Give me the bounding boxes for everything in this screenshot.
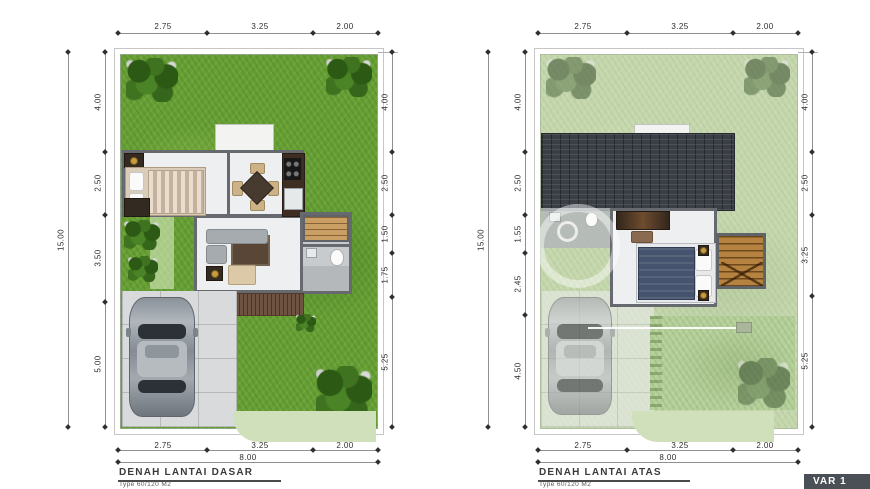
bath-sink [306, 248, 317, 258]
dim-label: 1.75 [381, 266, 390, 283]
dim-label: 3.25 [671, 22, 688, 31]
garden-plants [126, 58, 178, 102]
rear-window [557, 379, 603, 392]
dim-tick [115, 459, 121, 465]
wardrobe [616, 211, 670, 230]
dim-tick [389, 49, 395, 55]
sunroof [564, 345, 596, 358]
lamp [700, 247, 707, 254]
lamp [130, 157, 138, 165]
side-mirror [610, 328, 615, 337]
watermark-ring [536, 204, 620, 288]
dim-tick [115, 447, 121, 453]
dim-label: 1.55 [514, 225, 523, 242]
garden-plants [738, 358, 790, 408]
dim-label: 3.25 [801, 246, 810, 263]
dim-tick [809, 212, 815, 218]
dim-line [525, 52, 526, 427]
dim-label: 3.25 [671, 441, 688, 450]
side-mirror [193, 328, 198, 337]
dim-tick [389, 149, 395, 155]
dim-tick [535, 447, 541, 453]
roof-tiles [541, 133, 735, 211]
dim-label: 2.75 [574, 441, 591, 450]
dim-label: 4.00 [381, 93, 390, 110]
garden-plants [546, 57, 596, 99]
garden-plants [744, 57, 790, 97]
sidewalk-apron [632, 411, 774, 442]
kitchen-sink [284, 188, 303, 210]
dim-tick [389, 424, 395, 430]
dim-label: 5.00 [94, 355, 103, 372]
dim-line [392, 52, 393, 427]
dim-label: 4.50 [514, 362, 523, 379]
dim-line [105, 52, 106, 427]
plan-subtitle: Type 60/120 M2 [539, 481, 591, 488]
floorplan-sheet: 2.75 3.25 2.00 15.00 4.00 2.50 3.50 5.00… [0, 0, 870, 489]
bedroom-wall [227, 150, 230, 217]
dim-label: 2.50 [514, 174, 523, 191]
dim-label: 1.50 [381, 225, 390, 242]
dim-label: 5.25 [381, 353, 390, 370]
plan-title: DENAH LANTAI ATAS [538, 467, 690, 482]
dim-label: 8.00 [659, 453, 676, 462]
dim-line [538, 33, 798, 34]
walkway-marker [736, 322, 752, 333]
dim-line [118, 450, 378, 451]
dim-tick [522, 212, 528, 218]
dim-line [812, 52, 813, 427]
dim-label: 4.00 [94, 93, 103, 110]
dim-label: 8.00 [239, 453, 256, 462]
dim-tick [102, 49, 108, 55]
dim-label: 15.00 [477, 229, 486, 251]
armchair [206, 245, 227, 264]
dim-label: 3.50 [94, 249, 103, 266]
plan-title: DENAH LANTAI DASAR [118, 467, 281, 482]
sidewalk-apron [233, 411, 376, 442]
side-mirror [126, 328, 131, 337]
dim-line [538, 450, 798, 451]
dim-line [68, 52, 69, 427]
hedge-strip [650, 316, 662, 410]
nightstand [124, 153, 144, 168]
pillow [129, 172, 144, 191]
lamp [700, 292, 707, 299]
nightstand [698, 290, 709, 301]
dim-tick [102, 299, 108, 305]
dim-tick [102, 424, 108, 430]
dim-tick [310, 30, 316, 36]
garden-plants [128, 256, 158, 282]
dim-tick [204, 447, 210, 453]
blanket [638, 247, 695, 300]
walkway-line [588, 327, 738, 329]
staircase [303, 215, 349, 242]
dim-label: 2.50 [94, 174, 103, 191]
staircase [716, 233, 766, 289]
dim-tick [522, 312, 528, 318]
dresser [124, 198, 150, 217]
car-graphic [129, 297, 195, 417]
dim-ext-line [798, 52, 818, 53]
dim-tick [102, 212, 108, 218]
dim-label: 5.25 [801, 352, 810, 369]
dim-label: 4.00 [514, 93, 523, 110]
dim-tick [624, 30, 630, 36]
dim-tick [809, 49, 815, 55]
dim-tick [389, 250, 395, 256]
bath-wall [300, 244, 352, 247]
nightstand [698, 245, 709, 256]
windshield [138, 324, 186, 339]
dim-label: 2.75 [574, 22, 591, 31]
dim-line [118, 462, 378, 463]
plan-subtitle: Type 60/120 M2 [119, 481, 171, 488]
dim-tick [795, 447, 801, 453]
dim-tick [809, 149, 815, 155]
dim-tick [730, 447, 736, 453]
lounge-chair [228, 265, 256, 285]
dim-tick [65, 49, 71, 55]
rear-window [138, 380, 186, 393]
dim-tick [624, 447, 630, 453]
dim-label: 2.45 [514, 275, 523, 292]
dim-label: 2.00 [336, 441, 353, 450]
stair-diagonal [721, 262, 763, 286]
dim-tick [795, 30, 801, 36]
dim-line [488, 52, 489, 427]
dim-label: 2.00 [756, 441, 773, 450]
dim-tick [522, 424, 528, 430]
toilet [330, 249, 344, 266]
dim-tick [809, 293, 815, 299]
dim-tick [204, 30, 210, 36]
decor [211, 270, 219, 278]
dim-tick [375, 459, 381, 465]
garden-plants [124, 220, 160, 250]
dim-tick [795, 459, 801, 465]
dim-label: 3.25 [251, 22, 268, 31]
dim-label: 2.50 [381, 174, 390, 191]
dim-tick [389, 212, 395, 218]
dim-tick [115, 30, 121, 36]
shower-area [303, 266, 349, 291]
side-mirror [545, 328, 550, 337]
dim-tick [485, 49, 491, 55]
dim-tick [809, 424, 815, 430]
sunroof [145, 345, 179, 358]
garden-plants [296, 314, 316, 332]
dim-tick [102, 149, 108, 155]
dim-label: 2.75 [154, 441, 171, 450]
dim-line [118, 33, 378, 34]
blanket [148, 170, 204, 214]
dim-tick [535, 459, 541, 465]
bench [631, 231, 653, 243]
dim-tick [535, 30, 541, 36]
dim-tick [522, 49, 528, 55]
dim-tick [730, 30, 736, 36]
dim-tick [375, 447, 381, 453]
stove [284, 158, 301, 180]
garden-plants [326, 57, 372, 97]
sofa [206, 229, 268, 244]
dim-tick [522, 250, 528, 256]
dim-tick [65, 424, 71, 430]
dim-ext-line [378, 52, 398, 53]
dim-label: 2.00 [336, 22, 353, 31]
dim-label: 2.75 [154, 22, 171, 31]
side-table [206, 266, 223, 281]
dim-label: 3.25 [251, 441, 268, 450]
dim-label: 4.00 [801, 93, 810, 110]
dim-label: 15.00 [57, 229, 66, 251]
dim-label: 2.00 [756, 22, 773, 31]
dim-tick [485, 424, 491, 430]
dim-label: 2.50 [801, 174, 810, 191]
dim-tick [375, 30, 381, 36]
dim-tick [310, 447, 316, 453]
dim-tick [522, 149, 528, 155]
dim-line [538, 462, 798, 463]
car-graphic [548, 297, 612, 415]
dim-tick [389, 294, 395, 300]
variant-badge: VAR 1 [804, 474, 870, 489]
